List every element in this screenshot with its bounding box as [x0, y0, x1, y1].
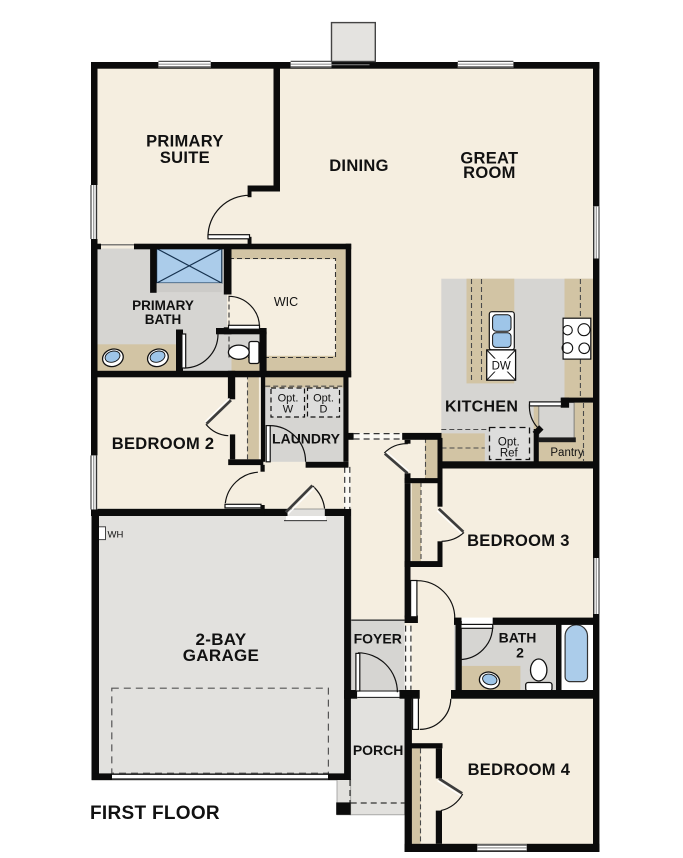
svg-text:WH: WH — [108, 530, 124, 541]
svg-text:Ref: Ref — [500, 448, 519, 460]
svg-text:LAUNDRY: LAUNDRY — [272, 431, 341, 447]
svg-text:PRIMARY: PRIMARY — [132, 298, 194, 313]
svg-text:2: 2 — [516, 645, 524, 661]
svg-text:BEDROOM 4: BEDROOM 4 — [468, 761, 571, 779]
svg-text:ROOM: ROOM — [463, 164, 516, 182]
svg-text:BEDROOM 2: BEDROOM 2 — [112, 435, 215, 453]
svg-text:FOYER: FOYER — [354, 631, 402, 647]
svg-text:BEDROOM 3: BEDROOM 3 — [467, 532, 570, 550]
svg-text:BATH: BATH — [499, 630, 537, 646]
svg-text:D: D — [320, 404, 328, 416]
svg-text:PORCH: PORCH — [353, 742, 404, 758]
svg-text:Pantry: Pantry — [550, 447, 583, 459]
svg-text:WIC: WIC — [274, 295, 298, 309]
svg-text:KITCHEN: KITCHEN — [445, 399, 518, 416]
svg-text:FIRST FLOOR: FIRST FLOOR — [90, 803, 220, 824]
svg-text:GARAGE: GARAGE — [183, 646, 259, 665]
svg-text:SUITE: SUITE — [160, 149, 210, 167]
svg-text:W: W — [283, 404, 294, 416]
svg-text:DW: DW — [492, 361, 511, 373]
svg-text:DINING: DINING — [329, 157, 389, 175]
svg-text:PRIMARY: PRIMARY — [146, 133, 224, 151]
svg-text:BATH: BATH — [145, 312, 182, 327]
